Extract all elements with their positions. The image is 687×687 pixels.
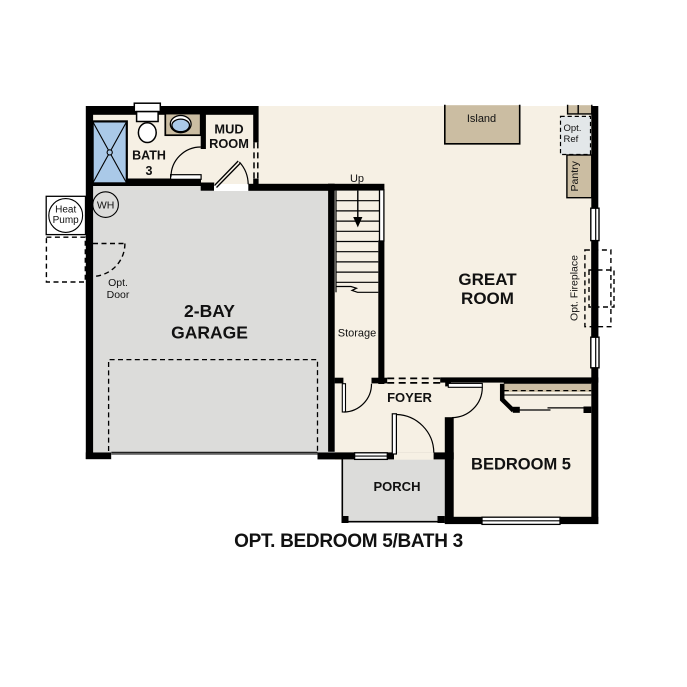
svg-text:OPT. BEDROOM 5/BATH 3: OPT. BEDROOM 5/BATH 3 (234, 531, 463, 552)
svg-text:GARAGE: GARAGE (171, 323, 248, 343)
svg-text:Pantry: Pantry (569, 160, 581, 191)
svg-text:ROOM: ROOM (461, 289, 514, 308)
svg-text:Door: Door (107, 289, 130, 301)
svg-text:WH: WH (97, 200, 115, 212)
svg-text:3: 3 (146, 164, 153, 178)
svg-text:FOYER: FOYER (387, 390, 432, 405)
svg-text:Island: Island (467, 113, 496, 125)
svg-text:Opt.: Opt. (564, 123, 582, 134)
svg-text:Opt.: Opt. (108, 277, 128, 289)
svg-text:PORCH: PORCH (374, 479, 421, 494)
svg-text:Heat: Heat (55, 205, 76, 216)
svg-text:MUD: MUD (214, 121, 243, 136)
svg-text:Pump: Pump (53, 215, 80, 226)
svg-text:BEDROOM 5: BEDROOM 5 (471, 455, 571, 473)
svg-text:ROOM: ROOM (209, 136, 249, 151)
svg-text:GREAT: GREAT (458, 270, 517, 289)
svg-text:BATH: BATH (132, 148, 166, 162)
svg-text:Up: Up (350, 173, 364, 185)
svg-text:Storage: Storage (338, 328, 377, 340)
svg-text:Ref: Ref (564, 134, 579, 145)
svg-text:Opt. Fireplace: Opt. Fireplace (569, 255, 581, 321)
svg-text:2-BAY: 2-BAY (184, 301, 235, 321)
